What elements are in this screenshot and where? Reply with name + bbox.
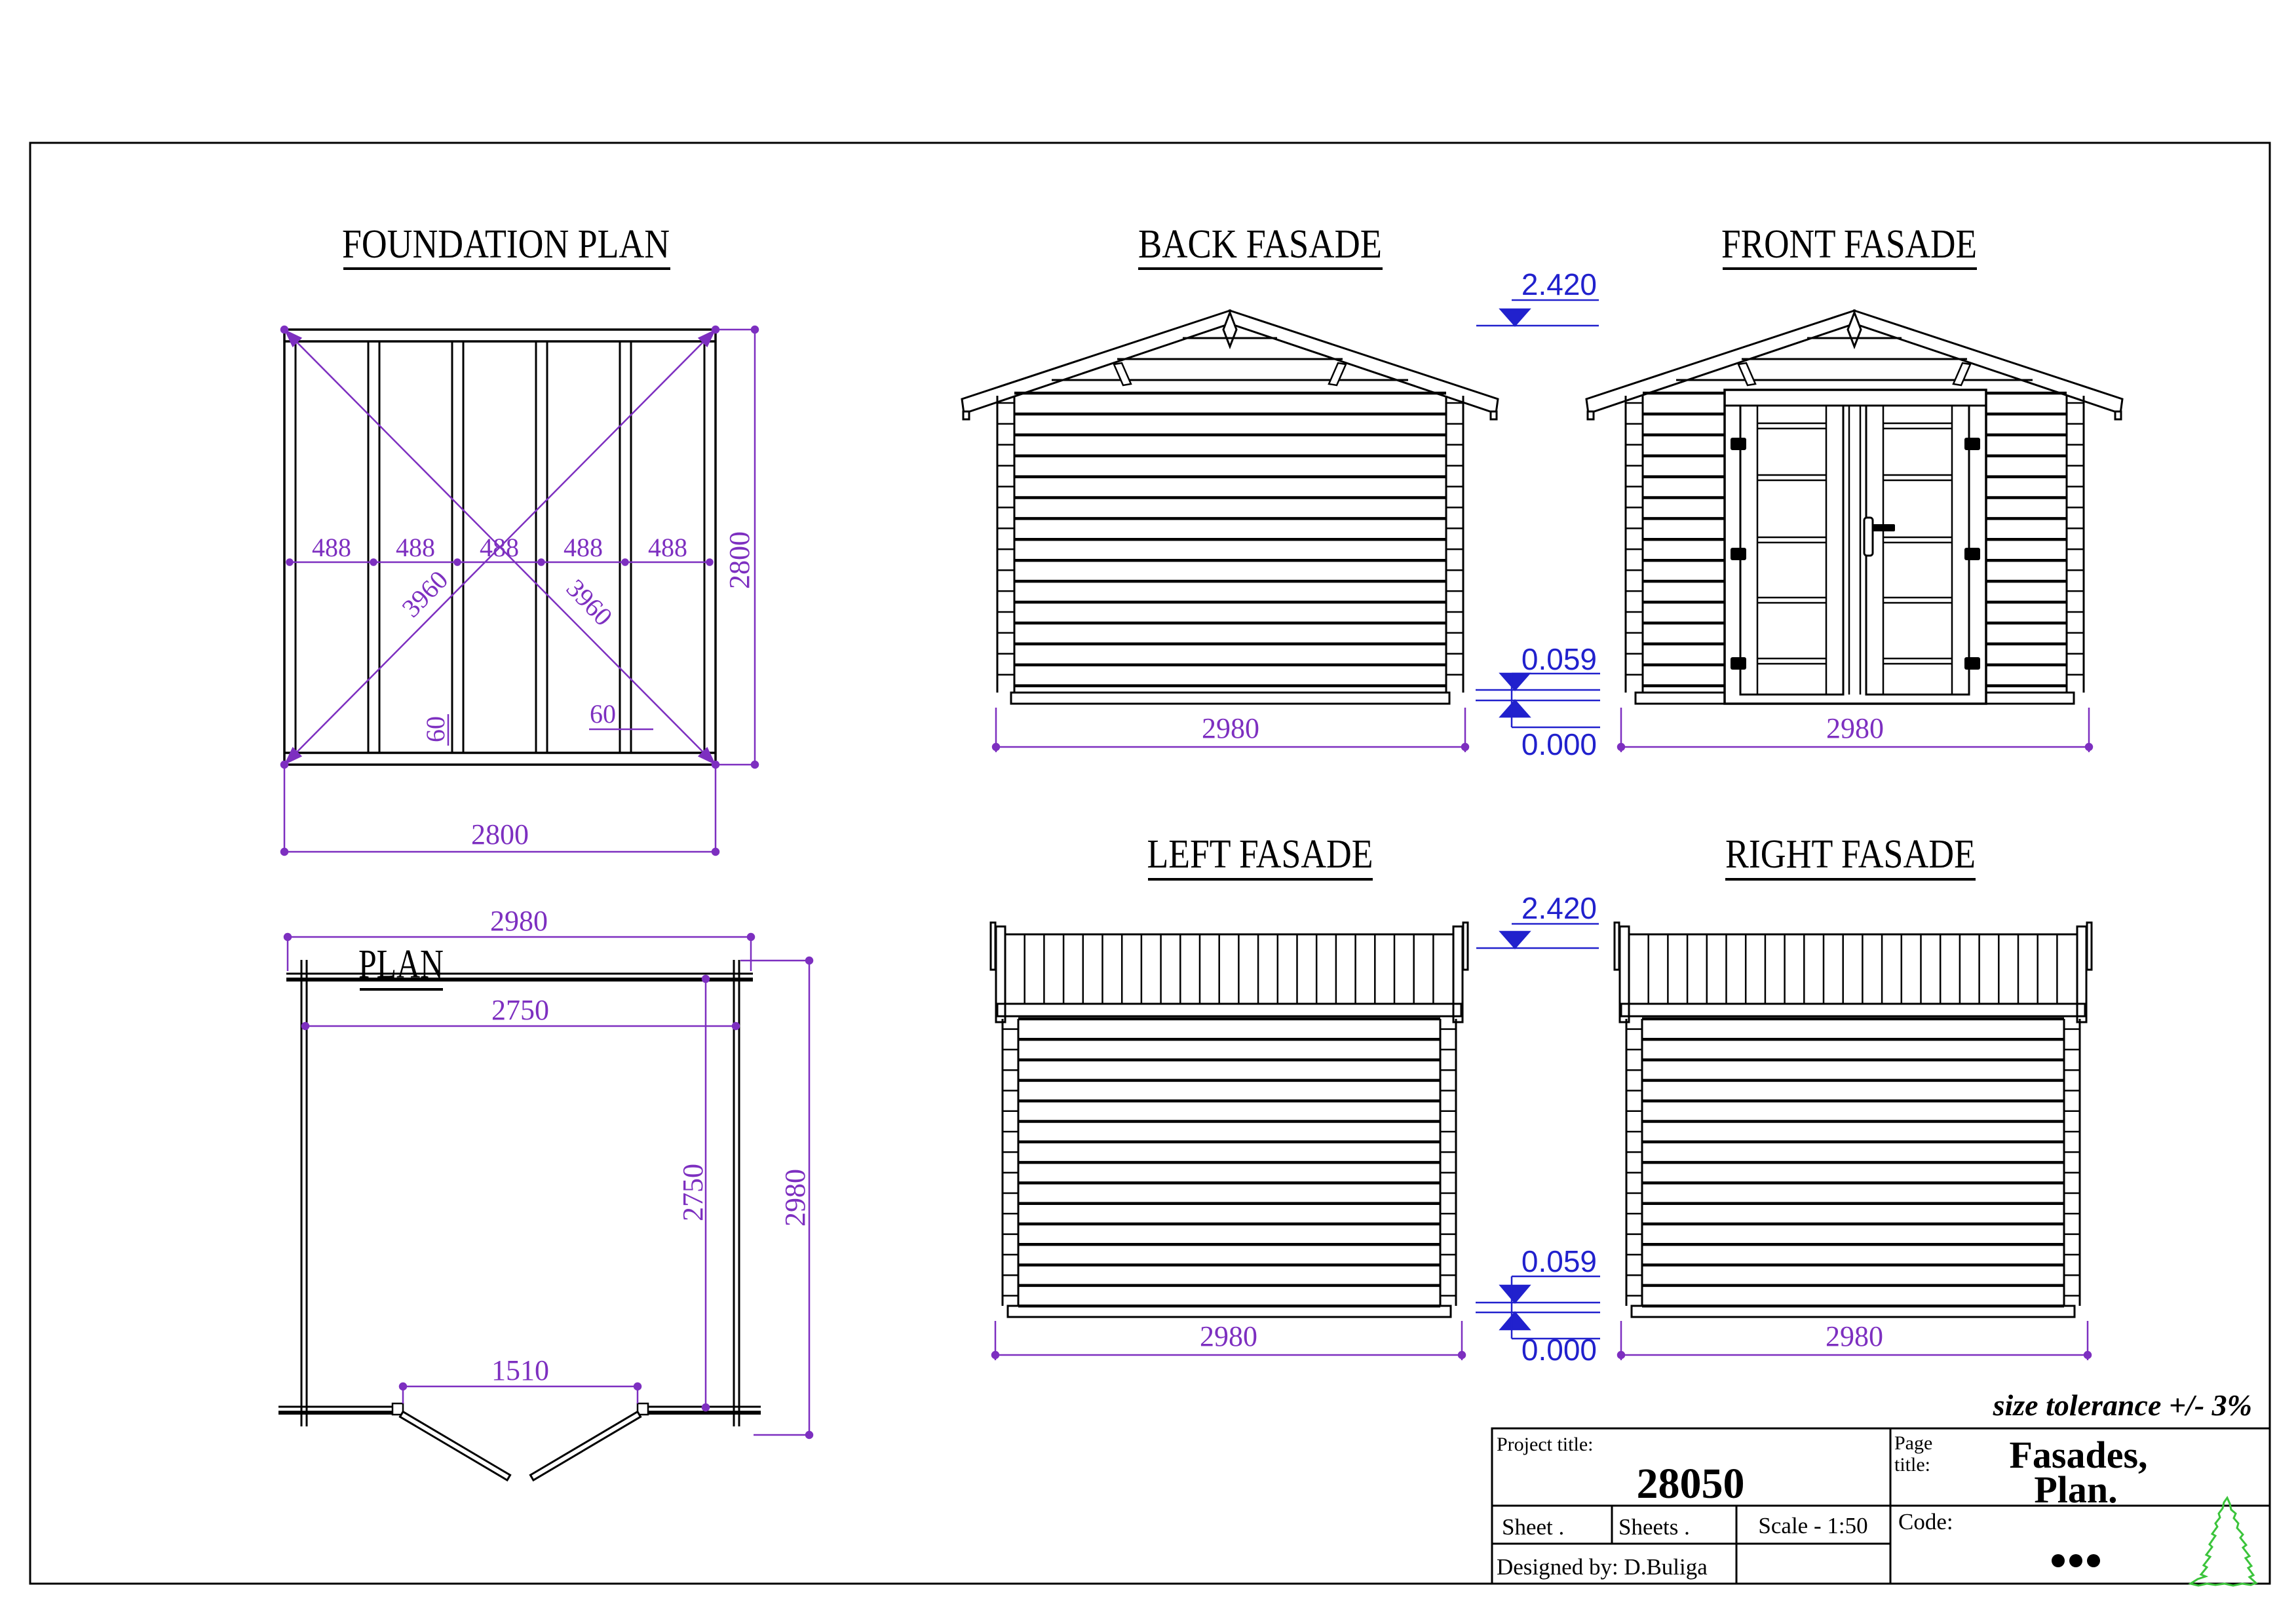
- code-dots: [2052, 1554, 2100, 1567]
- bay-dim-label: 488: [312, 533, 351, 562]
- left-fasade-view: LEFT FASADE 2980: [991, 832, 1468, 1360]
- door-leaf-left: [400, 1412, 510, 1480]
- ground-level-label: 0.000: [1521, 727, 1597, 761]
- foundation-title: FOUNDATION PLAN: [342, 222, 670, 267]
- right-trim-ticks-l: [1626, 1029, 1642, 1296]
- foundation-plan-view: FOUNDATION PLAN 3960 3960: [281, 222, 759, 856]
- left-trim-ticks-r: [1440, 1029, 1456, 1296]
- scale-label: Scale - 1:50: [1758, 1513, 1867, 1538]
- tolerance-note: size tolerance +/- 3%: [1993, 1388, 2252, 1422]
- back-width-label: 2980: [1202, 712, 1259, 744]
- left-roof-boards: [1025, 934, 1434, 1004]
- front-trim-ticks-l: [1626, 403, 1643, 675]
- plinth-level-label: 0.059: [1521, 1244, 1597, 1278]
- drawing-sheet: FOUNDATION PLAN 3960 3960: [0, 0, 2296, 1621]
- bay-dim-label: 488: [480, 533, 519, 562]
- joist-width-label: 60: [590, 699, 616, 729]
- plinth-level-label: 0.059: [1521, 642, 1597, 676]
- back-roof: [962, 311, 1498, 419]
- left-fascia: [997, 1004, 1461, 1016]
- back-corner-trims: [997, 396, 1463, 693]
- diagonal-dim-label: 3960: [396, 565, 453, 623]
- bay-dim-label: 488: [564, 533, 603, 562]
- right-base-strip: [1632, 1306, 2075, 1317]
- front-double-door: [1725, 390, 1986, 704]
- left-trim-ticks-l: [1003, 1029, 1018, 1296]
- right-roof-boards: [1649, 934, 2057, 1004]
- right-trim-ticks-r: [2064, 1029, 2080, 1296]
- eave-level-label: 2.420: [1521, 267, 1597, 301]
- back-trim-ticks-r: [1446, 403, 1463, 675]
- back-wall-planks: [1014, 393, 1446, 686]
- front-trim-ticks-r: [2067, 403, 2084, 675]
- front-fasade-title: FRONT FASADE: [1721, 222, 1977, 267]
- joist-width-label: 60: [421, 716, 450, 742]
- elevation-markers-bottom: 2.420 0.059 0.000: [1476, 891, 1600, 1367]
- elevation-markers-top: 2.420 0.059 0.000: [1476, 267, 1600, 761]
- plan-inner-width-label: 2750: [491, 994, 549, 1026]
- page-title-label-line2: title:: [1894, 1454, 1930, 1476]
- left-roof-deck: [1005, 934, 1453, 1004]
- ground-level-label: 0.000: [1521, 1333, 1597, 1367]
- left-wall-planks: [1018, 1019, 1440, 1306]
- right-fasade-view: RIGHT FASADE 2980: [1615, 832, 2092, 1360]
- designed-by: Designed by: D.Buliga: [1497, 1554, 1708, 1580]
- right-roof-deck: [1629, 934, 2077, 1004]
- plan-door-opening-label: 1510: [491, 1354, 549, 1386]
- plan-view: PLAN: [278, 905, 813, 1480]
- front-fasade-view: FRONT FASADE: [1586, 222, 2122, 752]
- right-wall-planks: [1642, 1019, 2064, 1306]
- left-width-label: 2980: [1200, 1320, 1257, 1352]
- right-fasade-title: RIGHT FASADE: [1725, 832, 1976, 877]
- eave-level-label: 2.420: [1521, 891, 1597, 925]
- front-wall-planks-right: [1986, 393, 2067, 686]
- tree-icon: [2191, 1498, 2256, 1586]
- plan-inner-depth-label: 2750: [677, 1164, 709, 1221]
- title-block: size tolerance +/- 3% Project title: 280…: [1492, 1388, 2270, 1586]
- back-fasade-view: BACK FASADE 29: [962, 222, 1498, 752]
- foundation-height-label: 2800: [723, 531, 756, 589]
- back-base-strip: [1011, 693, 1449, 704]
- right-width-label: 2980: [1826, 1320, 1883, 1352]
- right-fascia: [1621, 1004, 2085, 1016]
- plan-outer-width-label: 2980: [490, 905, 548, 937]
- left-roof-edge: [991, 923, 1468, 1022]
- sheets-label: Sheets .: [1618, 1514, 1690, 1540]
- back-trim-ticks-l: [997, 403, 1014, 675]
- project-number: 28050: [1637, 1460, 1745, 1508]
- front-width-label: 2980: [1826, 712, 1884, 744]
- front-wall-planks-left: [1643, 393, 1725, 686]
- foundation-width-label: 2800: [471, 818, 529, 850]
- sheet-label: Sheet .: [1502, 1514, 1564, 1540]
- right-roof-edge: [1615, 923, 2092, 1022]
- page-title-line2: Plan.: [2034, 1468, 2117, 1511]
- bay-dim-label: 488: [396, 533, 435, 562]
- front-gable-braces: [1738, 363, 1970, 385]
- left-fasade-title: LEFT FASADE: [1147, 832, 1373, 877]
- back-fasade-title: BACK FASADE: [1138, 222, 1382, 267]
- plan-outer-depth-label: 2980: [779, 1169, 811, 1227]
- left-base-strip: [1008, 1306, 1451, 1317]
- bay-dim-label: 488: [648, 533, 687, 562]
- page-title-label-line1: Page: [1894, 1432, 1932, 1454]
- door-leaf-right: [530, 1412, 640, 1480]
- back-gable-braces: [1114, 363, 1346, 385]
- code-label: Code:: [1898, 1509, 1953, 1535]
- project-title-label: Project title:: [1497, 1434, 1593, 1455]
- diagonal-dim-label: 3960: [561, 573, 619, 632]
